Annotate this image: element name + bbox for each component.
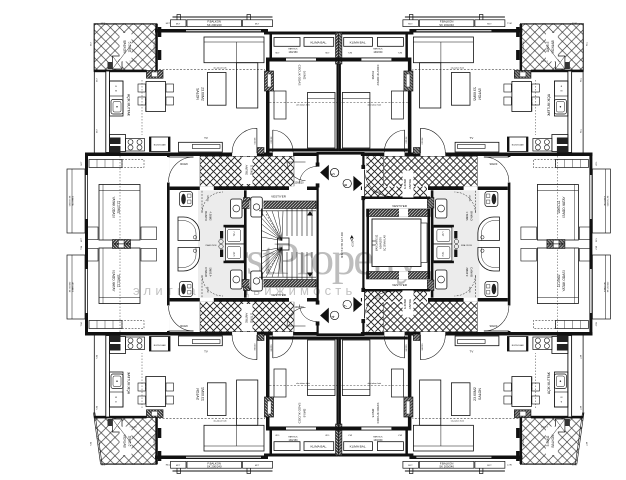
svg-text:TV: TV xyxy=(470,136,474,140)
svg-text:90/220: 90/220 xyxy=(490,163,498,166)
svg-text:5.70M2: 5.70M2 xyxy=(249,313,253,324)
svg-text:90/220: 90/220 xyxy=(180,325,188,328)
svg-text:PARTICK: PARTICK xyxy=(288,48,298,51)
svg-text:KLIMA BAL.: KLIMA BAL. xyxy=(350,40,367,44)
svg-text:üta-takan hattı: üta-takan hattı xyxy=(451,66,465,69)
svg-text:VESTIYER: VESTIYER xyxy=(392,204,408,208)
svg-text:ANTRE: ANTRE xyxy=(408,179,412,190)
svg-text:100/220: 100/220 xyxy=(294,181,304,184)
svg-text:M:52 H:17.65 KA:7.000: M:52 H:17.65 KA:7.000 xyxy=(341,231,344,258)
svg-text:ANTRE: ANTRE xyxy=(245,313,249,324)
svg-text:SK 200/240: SK 200/240 xyxy=(207,465,222,469)
svg-text:alm taban hattı: alm taban hattı xyxy=(368,103,382,106)
svg-text:6.30M2: 6.30M2 xyxy=(403,299,407,310)
svg-text:FWA.170CM: FWA.170CM xyxy=(461,244,472,247)
svg-text:ASANSÖR: ASANSÖR xyxy=(380,237,383,249)
svg-text:130/150: 130/150 xyxy=(288,439,298,442)
svg-text:MCT: MCT xyxy=(487,24,492,26)
svg-text:üta-takan hattı: üta-takan hattı xyxy=(451,419,465,422)
svg-text:BUZDOLABI: BUZDOLABI xyxy=(512,144,524,147)
svg-text:130/150: 130/150 xyxy=(288,51,298,54)
svg-text:ANTRE: ANTRE xyxy=(245,165,249,176)
svg-text:ÜÇ SINANLAR: ÜÇ SINANLAR xyxy=(384,235,387,251)
svg-text:100/220: 100/220 xyxy=(372,297,382,300)
svg-text:SK 200/240: SK 200/240 xyxy=(207,23,222,27)
svg-text:üta-takan hattı: üta-takan hattı xyxy=(213,419,227,422)
svg-text:MCT: MCT xyxy=(408,24,413,26)
svg-text:BUZDOLABI: BUZDOLABI xyxy=(154,144,166,147)
svg-text:VESTIYER: VESTIYER xyxy=(271,195,287,199)
svg-text:alm taban hattı: alm taban hattı xyxy=(368,382,382,385)
svg-text:FWA.170CM: FWA.170CM xyxy=(206,244,217,247)
svg-text:SK 200/240: SK 200/240 xyxy=(439,465,454,469)
svg-text:100/220: 100/220 xyxy=(372,191,382,194)
svg-text:SK 200/240: SK 200/240 xyxy=(439,23,454,27)
svg-text:KLIMA BAL.: KLIMA BAL. xyxy=(310,40,327,44)
svg-text:5.70M2: 5.70M2 xyxy=(249,165,253,176)
svg-text:+2.50: +2.50 xyxy=(352,240,355,247)
svg-text:90/220: 90/220 xyxy=(180,163,188,166)
svg-text:BUZDOLABI: BUZDOLABI xyxy=(154,344,166,347)
svg-text:MCT: MCT xyxy=(487,465,492,467)
svg-text:üta-takan hattı: üta-takan hattı xyxy=(213,66,227,69)
svg-text:VESTIYER: VESTIYER xyxy=(392,283,408,287)
svg-text:VESTIYER: VESTIYER xyxy=(271,293,287,297)
svg-text:6.30M2: 6.30M2 xyxy=(403,179,407,190)
svg-text:TV: TV xyxy=(204,136,208,140)
svg-text:KLIMA BAL.: KLIMA BAL. xyxy=(310,445,327,449)
svg-text:130/150: 130/150 xyxy=(373,439,383,442)
svg-text:TV: TV xyxy=(470,350,474,354)
svg-text:alm taban hattı: alm taban hattı xyxy=(296,382,310,385)
svg-text:PARTICK: PARTICK xyxy=(373,48,383,51)
svg-text:100/220: 100/220 xyxy=(294,306,304,309)
svg-text:MCT: MCT xyxy=(408,465,413,467)
svg-text:KLIMA BAL.: KLIMA BAL. xyxy=(350,445,367,449)
svg-text:130/150: 130/150 xyxy=(373,51,383,54)
svg-text:TV: TV xyxy=(204,350,208,354)
svg-text:alm taban hattı: alm taban hattı xyxy=(296,103,310,106)
svg-text:BUZDOLABI: BUZDOLABI xyxy=(512,344,524,347)
svg-text:ANTRE: ANTRE xyxy=(408,299,412,310)
svg-text:90/220: 90/220 xyxy=(490,325,498,328)
svg-text:MAX.DAIRE:52: MAX.DAIRE:52 xyxy=(376,234,379,251)
